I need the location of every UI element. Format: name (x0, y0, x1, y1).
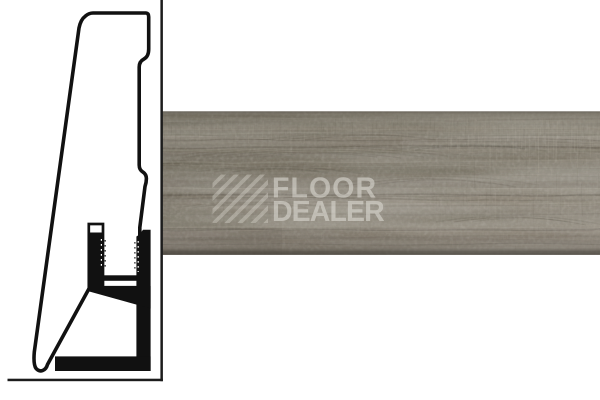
svg-text:DEALER: DEALER (272, 196, 384, 228)
